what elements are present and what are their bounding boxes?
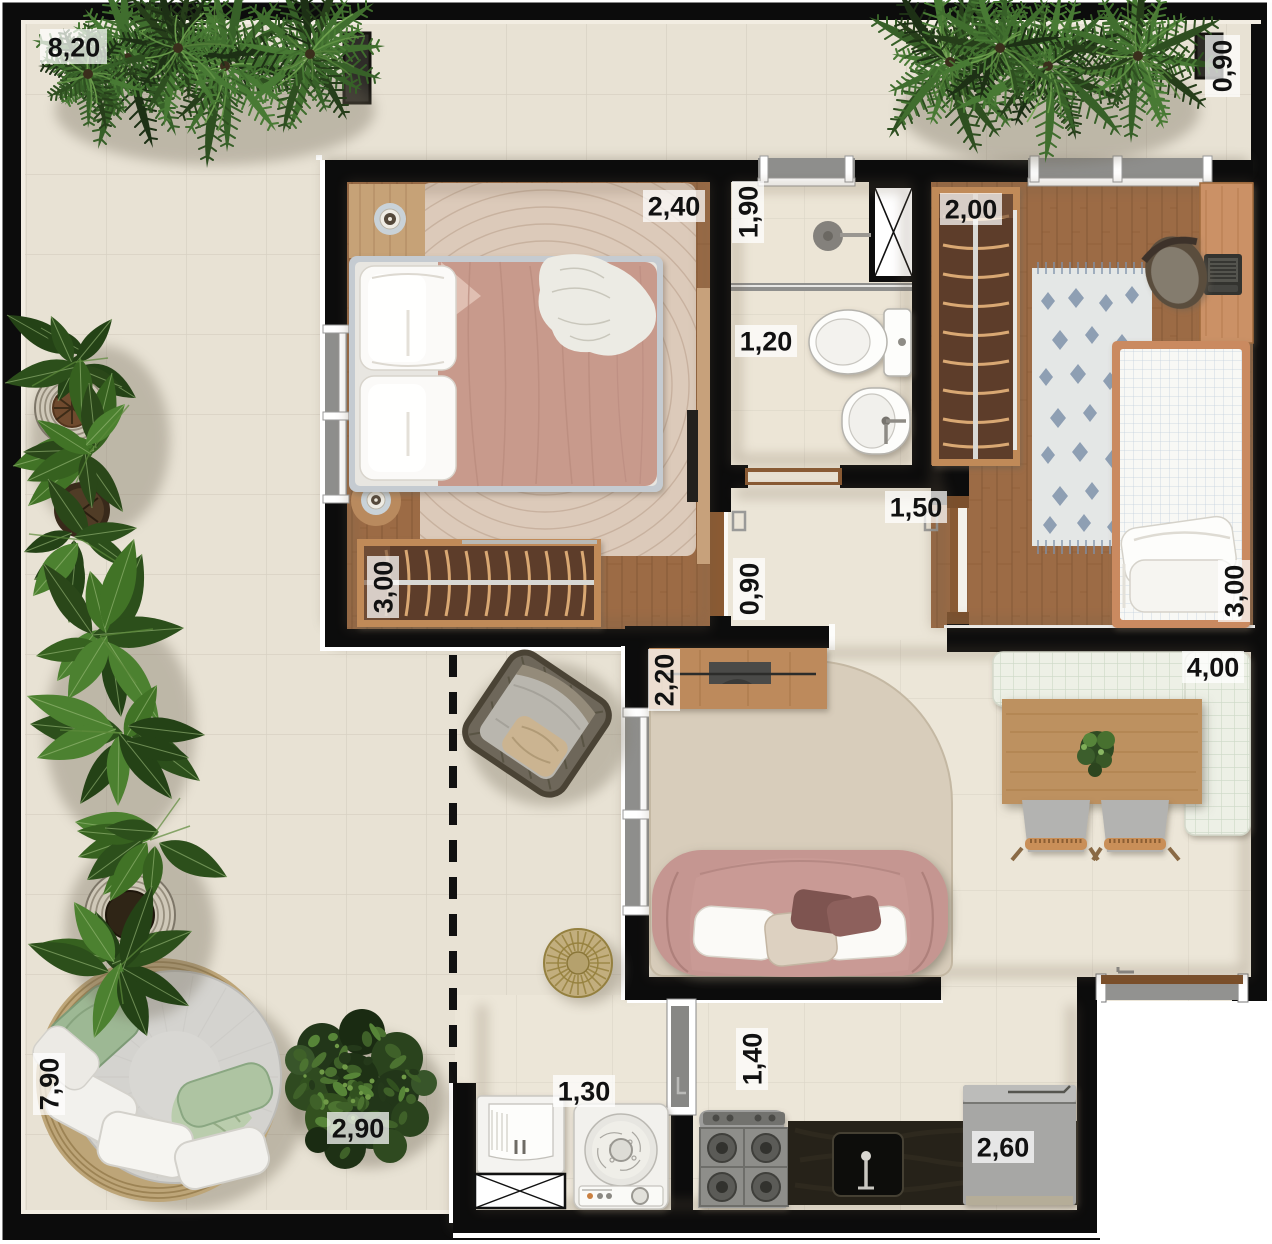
svg-text:2,00: 2,00 <box>945 195 998 225</box>
svg-text:7,90: 7,90 <box>35 1058 65 1111</box>
svg-text:1,20: 1,20 <box>740 327 793 357</box>
svg-text:1,50: 1,50 <box>890 493 943 523</box>
svg-text:2,60: 2,60 <box>977 1133 1030 1163</box>
svg-text:0,90: 0,90 <box>1208 40 1238 93</box>
svg-text:3,00: 3,00 <box>1220 565 1250 618</box>
svg-text:8,20: 8,20 <box>48 33 101 63</box>
svg-text:2,20: 2,20 <box>650 654 680 707</box>
svg-text:0,90: 0,90 <box>735 563 765 616</box>
svg-text:2,90: 2,90 <box>332 1114 385 1144</box>
svg-text:1,90: 1,90 <box>734 186 764 239</box>
svg-text:4,00: 4,00 <box>1187 653 1240 683</box>
svg-text:1,40: 1,40 <box>738 1033 768 1086</box>
svg-text:1,30: 1,30 <box>558 1077 611 1107</box>
svg-text:3,00: 3,00 <box>369 561 399 614</box>
svg-text:2,40: 2,40 <box>648 192 701 222</box>
